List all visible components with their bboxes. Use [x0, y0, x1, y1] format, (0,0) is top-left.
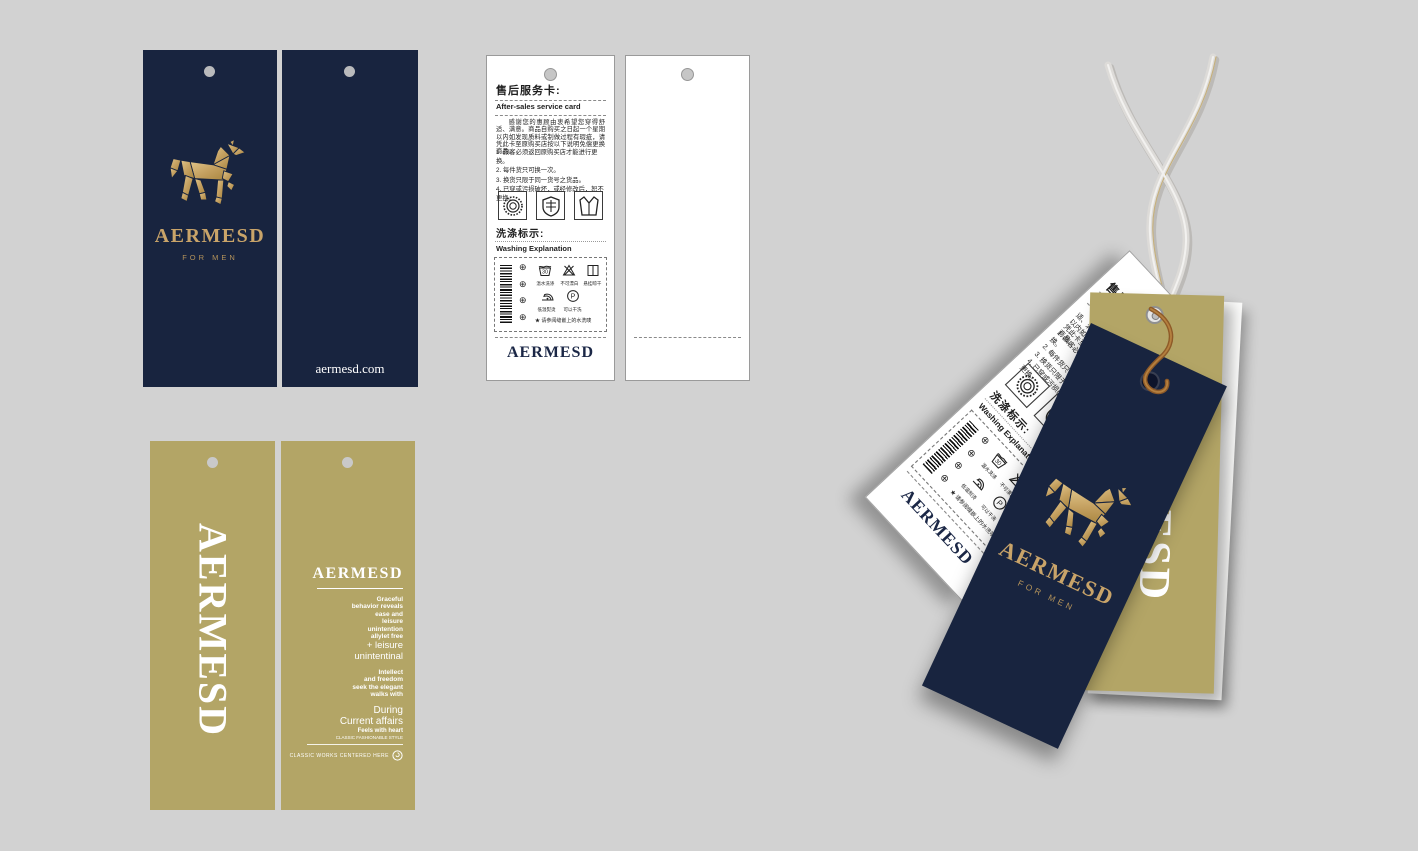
navy-tag-front: AERMESD FOR MEN: [143, 50, 277, 387]
tag-hole: [681, 68, 694, 81]
gold-tag-back: AERMESD Graceful behavior reveals ease a…: [281, 441, 415, 810]
swirl-logo-icon: [392, 750, 403, 761]
iron-low-icon: [540, 289, 554, 303]
no-bleach-icon: [562, 263, 576, 277]
cert-mark-icon: ⊕: [977, 433, 993, 449]
svg-text:30: 30: [542, 270, 548, 276]
copy-paragraph: Graceful behavior reveals ease and leisu…: [352, 596, 403, 640]
care-note: ★ 请参阅缝嵌上的水洗唛: [535, 317, 603, 324]
tag-hole: [544, 68, 557, 81]
service-card-back: [625, 55, 750, 381]
cert-mark-icon: ⊕: [963, 445, 979, 461]
cert-mark-icon: ⊕: [519, 311, 527, 324]
copy-paragraph: Intellect and freedom seek the elegant w…: [352, 669, 403, 699]
brand-website: aermesd.com: [282, 361, 418, 377]
divider: [495, 100, 606, 101]
service-card-front: 售后服务卡: After-sales service card 感谢您的惠顾由衷…: [486, 55, 615, 381]
copy-paragraph: Feels with heart: [358, 728, 403, 734]
origami-horse-icon: [164, 138, 256, 216]
care-symbol-grid: 30 温水洗涤 不可漂白: [535, 263, 603, 324]
divider: [495, 241, 606, 242]
laurel-badge-icon: [498, 191, 527, 220]
care-label: 低温熨烫: [536, 308, 557, 313]
shield-badge-icon: [536, 191, 565, 220]
washing-title-zh: 洗涤标示:: [496, 225, 544, 240]
divider: [307, 744, 403, 745]
care-label: 悬挂晾干: [583, 282, 602, 287]
cert-mark-icon: ⊕: [519, 294, 527, 307]
brand-logo-block: AERMESD FOR MEN: [143, 138, 277, 262]
care-label: 温水洗涤: [536, 282, 555, 287]
copy-paragraph: CLASSIC FASHIONABLE STYLE: [336, 735, 403, 740]
care-label: 不可漂白: [560, 282, 579, 287]
divider: [495, 115, 606, 116]
vertical-brand-name: AERMESD: [189, 523, 236, 737]
suit-badge-icon: [574, 191, 603, 220]
cert-mark-icon: ⊕: [519, 261, 527, 274]
service-card-title-zh: 售后服务卡:: [496, 82, 561, 98]
hang-dry-icon: [586, 263, 600, 277]
cert-mark-column: ⊕ ⊕ ⊕ ⊕: [519, 261, 527, 324]
copy-paragraph: During Current affairs: [340, 705, 403, 727]
footer-line: CLASSIC WORKS CENTERED HERE: [290, 750, 403, 761]
brand-tagline: FOR MEN: [143, 253, 277, 262]
divider: [317, 588, 403, 589]
divider: [634, 337, 741, 338]
copy-paragraph: + leisure unintentinal: [354, 641, 403, 662]
hang-tag-design-board: AERMESD FOR MEN aermesd.com 售后服务卡: After…: [0, 0, 1418, 851]
service-card-content: 售后服务卡: After-sales service card 感谢您的惠顾由衷…: [487, 56, 614, 380]
cert-mark-icon: ⊕: [937, 470, 953, 486]
care-instruction-box: ⊕ ⊕ ⊕ ⊕ 30 温水洗涤: [494, 257, 607, 332]
tag-hole: [204, 66, 215, 77]
navy-tag-back: aermesd.com: [282, 50, 418, 387]
tag-hole: [344, 66, 355, 77]
divider: [495, 337, 606, 338]
cert-mark-icon: ⊕: [950, 458, 966, 474]
svg-text:P: P: [570, 294, 575, 301]
washing-title-en: Washing Explanation: [496, 244, 572, 253]
footer-text: CLASSIC WORKS CENTERED HERE: [290, 753, 389, 759]
barcode-icon: [500, 265, 512, 323]
cert-mark-icon: ⊕: [519, 278, 527, 291]
service-card-title-en: After-sales service card: [496, 102, 581, 111]
gold-back-content: AERMESD Graceful behavior reveals ease a…: [281, 441, 415, 810]
tag-hole: [207, 457, 218, 468]
brand-name: AERMESD: [312, 565, 403, 583]
brand-name: AERMESD: [487, 344, 614, 362]
wash-30-icon: 30: [538, 263, 552, 277]
gold-tag-front: AERMESD: [150, 441, 275, 810]
dry-clean-icon: P: [566, 289, 580, 303]
care-label: 可以干洗: [562, 308, 583, 313]
metal-grommet: [1145, 306, 1163, 324]
badge-row: [487, 191, 614, 220]
brand-name: AERMESD: [143, 225, 277, 248]
wash-30-icon: 30: [989, 450, 1011, 472]
